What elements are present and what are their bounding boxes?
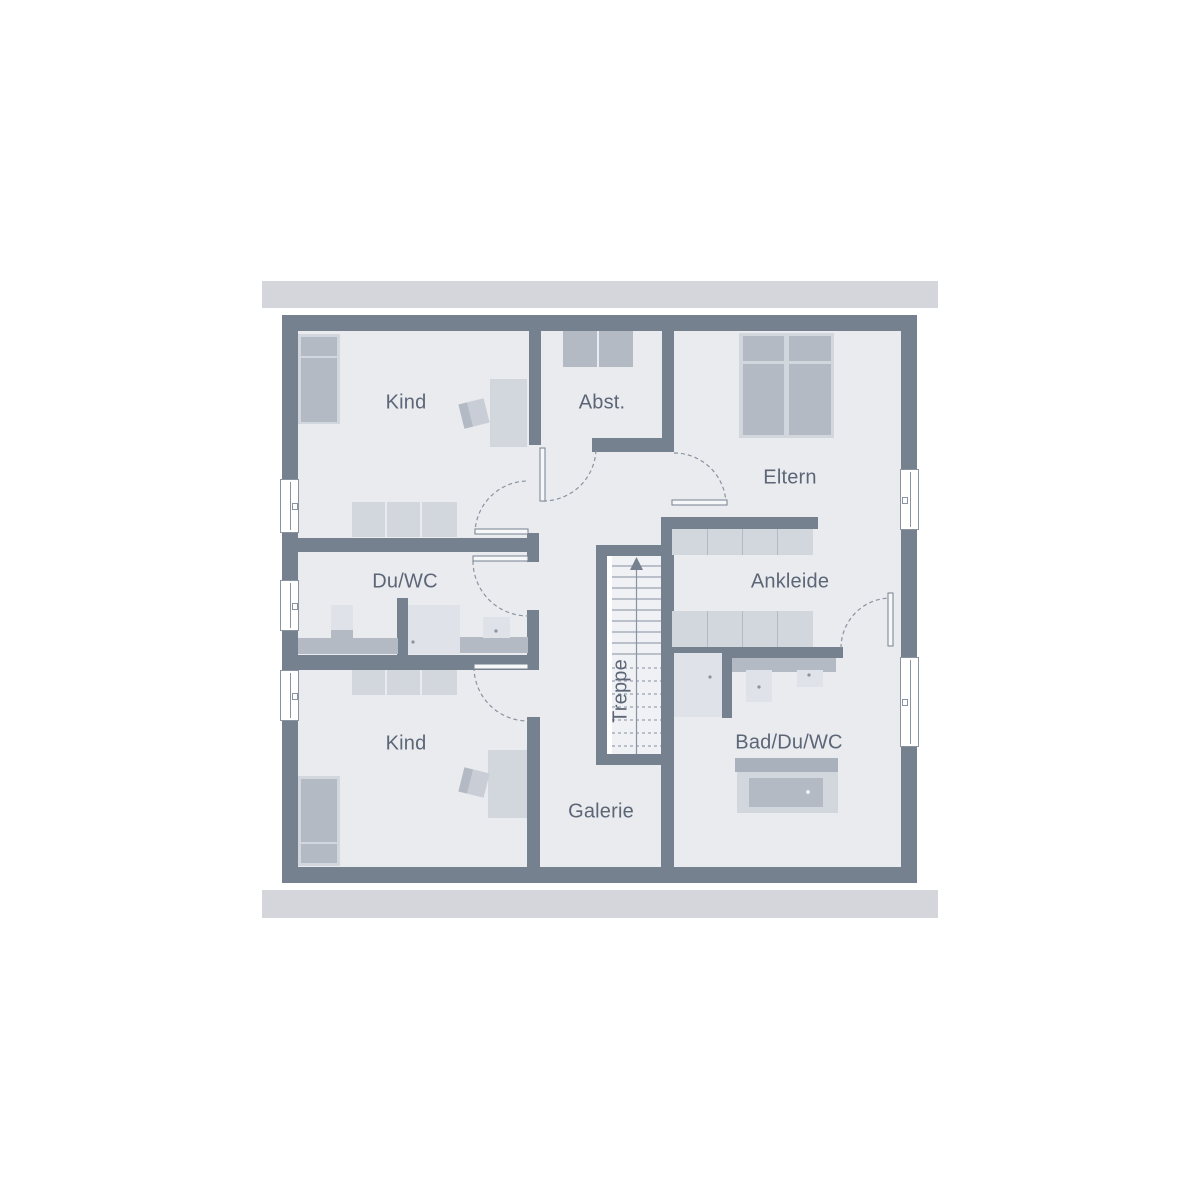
drain-dot <box>411 640 414 643</box>
room-label-kind-top: Kind <box>386 392 427 415</box>
room-label-galerie: Galerie <box>568 801 634 824</box>
door-leaf-duwc <box>473 556 528 561</box>
room-label-abstellraum: Abst. <box>579 392 626 415</box>
floorplan-canvas: Kind Abst. Eltern Du/WC Ankleide Treppe … <box>0 0 1200 1200</box>
door-arc-bad <box>841 598 891 648</box>
door-leaf-kind-bottom <box>474 664 528 669</box>
room-label-du-wc: Du/WC <box>372 571 437 594</box>
tap-dot <box>757 685 760 688</box>
tap-dot <box>494 629 497 632</box>
door-arc-eltern <box>674 453 726 505</box>
door-leaves <box>473 448 893 669</box>
stair-direction-arrow <box>630 557 643 570</box>
room-label-ankleide: Ankleide <box>751 571 829 594</box>
door-leaf-abst <box>540 448 545 501</box>
door-leaf-eltern <box>672 500 727 505</box>
drain-dot <box>708 675 711 678</box>
door-arc-duwc <box>473 561 528 616</box>
tap-dot <box>807 673 810 676</box>
door-arc-abst <box>543 448 596 501</box>
room-label-treppe: Treppe <box>610 659 633 723</box>
plan-symbols-overlay <box>0 0 1200 1200</box>
room-label-kind-bottom: Kind <box>386 733 427 756</box>
door-arc-kind-top <box>475 481 528 534</box>
room-label-bad-du-wc: Bad/Du/WC <box>735 732 842 755</box>
door-leaf-kind-top <box>475 529 528 534</box>
door-arc-kind-bottom <box>474 667 528 721</box>
room-label-eltern: Eltern <box>763 467 816 490</box>
door-leaf-bad <box>888 593 893 646</box>
bathtub-drain-dot <box>806 790 810 794</box>
